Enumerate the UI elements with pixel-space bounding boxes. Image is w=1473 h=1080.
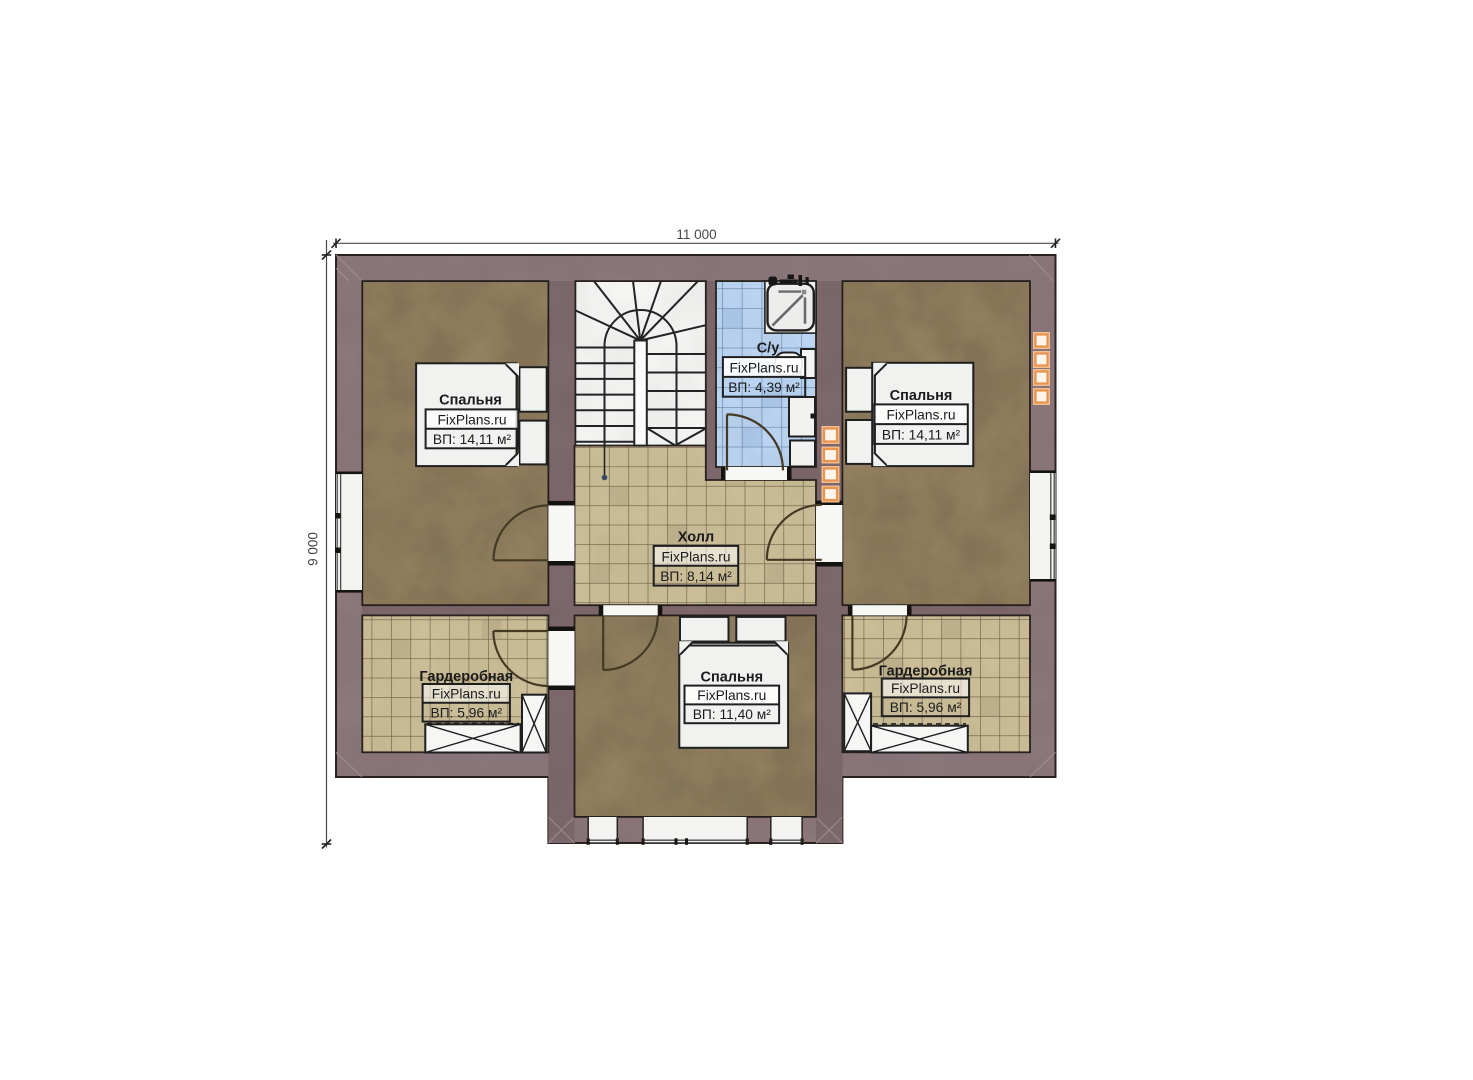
svg-text:FixPlans.ru: FixPlans.ru bbox=[437, 413, 506, 428]
svg-text:9 000: 9 000 bbox=[306, 532, 321, 566]
svg-text:ВП: 8,14 м²: ВП: 8,14 м² bbox=[660, 569, 732, 584]
svg-text:FixPlans.ru: FixPlans.ru bbox=[891, 681, 960, 696]
svg-text:FixPlans.ru: FixPlans.ru bbox=[729, 361, 798, 376]
svg-text:С/у: С/у bbox=[757, 340, 780, 356]
svg-text:ВП: 14,11 м²: ВП: 14,11 м² bbox=[433, 432, 512, 447]
svg-text:11 000: 11 000 bbox=[676, 227, 716, 242]
svg-text:Спальня: Спальня bbox=[439, 393, 502, 409]
svg-text:Гардеробная: Гардеробная bbox=[419, 669, 513, 685]
svg-text:Холл: Холл bbox=[678, 530, 714, 546]
svg-text:ВП: 4,39 м²: ВП: 4,39 м² bbox=[728, 380, 800, 395]
svg-text:ВП: 11,40 м²: ВП: 11,40 м² bbox=[693, 707, 772, 722]
svg-text:FixPlans.ru: FixPlans.ru bbox=[432, 687, 501, 702]
svg-text:Спальня: Спальня bbox=[890, 388, 953, 404]
svg-text:Гардеробная: Гардеробная bbox=[879, 663, 973, 679]
svg-text:FixPlans.ru: FixPlans.ru bbox=[697, 688, 766, 703]
svg-text:ВП: 14,11 м²: ВП: 14,11 м² bbox=[882, 427, 961, 442]
svg-text:ВП: 5,96 м²: ВП: 5,96 м² bbox=[431, 705, 503, 720]
svg-text:FixPlans.ru: FixPlans.ru bbox=[886, 408, 955, 423]
svg-text:FixPlans.ru: FixPlans.ru bbox=[661, 549, 730, 564]
svg-text:ВП: 5,96 м²: ВП: 5,96 м² bbox=[890, 700, 962, 715]
svg-text:Спальня: Спальня bbox=[700, 670, 763, 686]
